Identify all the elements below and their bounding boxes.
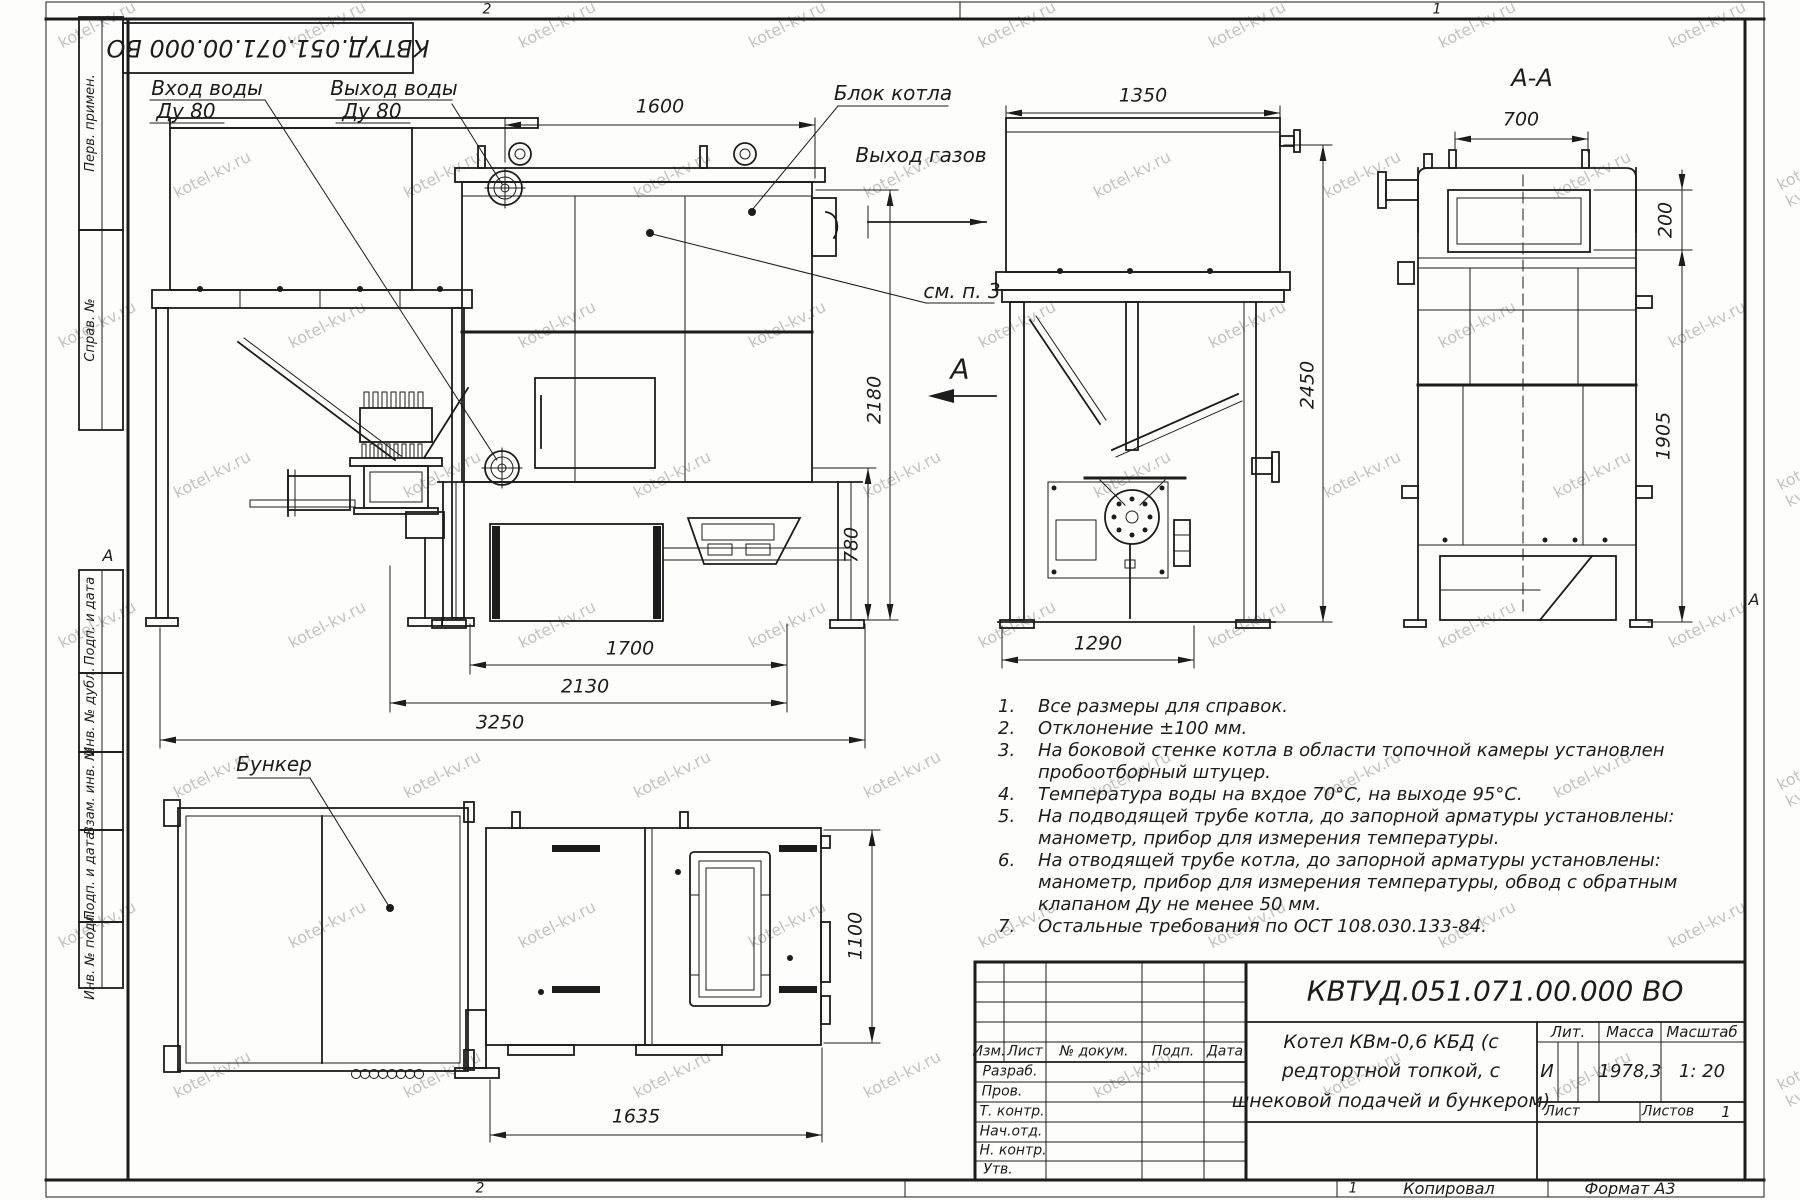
mass-header: Масса — [1606, 1024, 1654, 1041]
note-text: Все размеры для справок. — [1038, 696, 1288, 718]
note-text: Температура воды на вхдое 70°С, на выход… — [1038, 784, 1523, 806]
dim-1350: 1350 — [1119, 86, 1167, 107]
drawing-sheet: kotel-kv.rukotel-kv.rukotel-kv.rukotel-k… — [0, 0, 1800, 1200]
col-doc: № докум. — [1059, 1044, 1128, 1059]
margin-marker-left: А — [103, 547, 114, 565]
row-nkontr: Н. контр. — [979, 1143, 1046, 1158]
row-nachotd: Нач.отд. — [980, 1124, 1043, 1139]
row-utv: Утв. — [983, 1162, 1012, 1177]
dim-780: 780 — [842, 527, 863, 563]
note-number: 7. — [998, 916, 1038, 938]
note-text: На боковой стенке котла в области топочн… — [1038, 740, 1664, 784]
dim-3250: 3250 — [476, 713, 524, 734]
sidebar-item-inv-podl: Инв. № подл. — [84, 910, 98, 1000]
sheets-header: Листов — [1642, 1104, 1694, 1119]
dim-2180: 2180 — [865, 376, 886, 424]
note-number: 2. — [998, 718, 1038, 740]
row-razrab: Разраб. — [982, 1064, 1037, 1079]
lit-value: И — [1540, 1062, 1553, 1082]
note-number: 3. — [998, 740, 1038, 784]
note-3: 3.На боковой стенке котла в области топо… — [998, 740, 1678, 784]
dim-2450: 2450 — [1298, 361, 1319, 409]
scale-header: Масштаб — [1666, 1024, 1737, 1041]
note-text: На отводящей трубе котла, до запорной ар… — [1038, 850, 1677, 916]
dim-1905: 1905 — [1654, 412, 1675, 460]
sidebar-item-sprav-no: Справ. № — [84, 298, 98, 361]
note-number: 6. — [998, 850, 1038, 916]
note-number: 1. — [998, 696, 1038, 718]
sheet-frame — [46, 2, 1764, 1197]
col-date: Дата — [1207, 1044, 1243, 1059]
col-izm: Изм. — [973, 1044, 1006, 1059]
side-view — [146, 118, 538, 626]
water-inlet-label: Вход воды — [151, 77, 263, 99]
zone-number-bottom-left: 2 — [476, 1181, 485, 1196]
scale-value: 1: 20 — [1679, 1062, 1725, 1082]
sidebar-item-perv-primen: Перв. примен. — [84, 74, 98, 172]
note-text: На подводящей трубе котла, до запорной а… — [1038, 806, 1675, 850]
format-label: Формат А3 — [1584, 1180, 1675, 1198]
dim-1635: 1635 — [612, 1107, 660, 1128]
note-text: Отклонение ±100 мм. — [1038, 718, 1247, 740]
inverted-stamp-code: КВТУД.051.071.00.000 ВО — [106, 35, 429, 61]
sidebar-item-vzam-inv: Взам. инв. № — [84, 747, 98, 835]
rear-view — [996, 106, 1332, 668]
note-6: 6.На отводящей трубе котла, до запорной … — [998, 850, 1678, 916]
col-sign: Подп. — [1152, 1044, 1194, 1059]
note-number: 5. — [998, 806, 1038, 850]
note-4: 4.Температура воды на вхдое 70°С, на вых… — [998, 784, 1678, 806]
zone-number-top-left: 2 — [483, 2, 492, 17]
dim-1700: 1700 — [606, 639, 654, 660]
water-inlet-dn-label: Ду 80 — [156, 100, 215, 122]
dim-1100: 1100 — [846, 912, 867, 960]
dim-200: 200 — [1656, 202, 1677, 238]
water-outlet-dn-label: Ду 80 — [342, 100, 401, 122]
col-list: Лист — [1007, 1044, 1042, 1059]
dim-1290: 1290 — [1074, 634, 1122, 655]
zone-number-top-right: 1 — [1433, 2, 1442, 17]
lit-header: Лит. — [1551, 1024, 1586, 1041]
margin-marker-right: А — [1749, 591, 1760, 609]
water-outlet-label: Выход воды — [330, 77, 457, 99]
bunker-label: Бункер — [236, 753, 312, 775]
dim-1600: 1600 — [636, 97, 684, 118]
drawing-line-art — [0, 0, 1800, 1200]
note-1: 1.Все размеры для справок. — [998, 696, 1678, 718]
section-cut-letter: А — [950, 355, 969, 386]
sidebar-item-podp-data-1: Подп. и дата — [84, 577, 98, 666]
sidebar-item-inv-dubl: Инв. № дубл. — [84, 668, 98, 757]
see-note-label: см. п. 3 — [923, 280, 1000, 302]
dim-700: 700 — [1503, 110, 1539, 131]
note-5: 5.На подводящей трубе котла, до запорной… — [998, 806, 1678, 850]
dim-2130: 2130 — [561, 677, 609, 698]
sidebar-item-podp-data-2: Подп. и дата — [84, 832, 98, 921]
note-7: 7.Остальные требования по ОСТ 108.030.13… — [998, 916, 1678, 938]
note-text: Остальные требования по ОСТ 108.030.133-… — [1038, 916, 1487, 938]
title-block-name: Котел КВм-0,6 КБД (с редтортной топкой, … — [1232, 1028, 1550, 1116]
note-number: 4. — [998, 784, 1038, 806]
gas-outlet-label: Выход газов — [855, 144, 986, 166]
front-view — [432, 143, 864, 628]
plan-views — [164, 778, 880, 1142]
zone-number-bottom-right: 1 — [1349, 1181, 1358, 1196]
row-tkontr: Т. контр. — [979, 1104, 1044, 1119]
sheet-header: Лист — [1544, 1104, 1579, 1119]
technical-notes: 1.Все размеры для справок. 2.Отклонение … — [998, 696, 1678, 938]
section-view — [1378, 132, 1692, 627]
boiler-block-label: Блок котла — [834, 82, 952, 104]
note-2: 2.Отклонение ±100 мм. — [998, 718, 1678, 740]
mass-value: 1978,3 — [1599, 1062, 1662, 1082]
sheets-value: 1 — [1721, 1104, 1731, 1121]
copied-label: Копировал — [1403, 1180, 1494, 1198]
section-title: А-А — [1511, 65, 1553, 91]
title-block-code: КВТУД.051.071.00.000 ВО — [1307, 977, 1684, 1008]
row-prov: Пров. — [982, 1084, 1023, 1099]
